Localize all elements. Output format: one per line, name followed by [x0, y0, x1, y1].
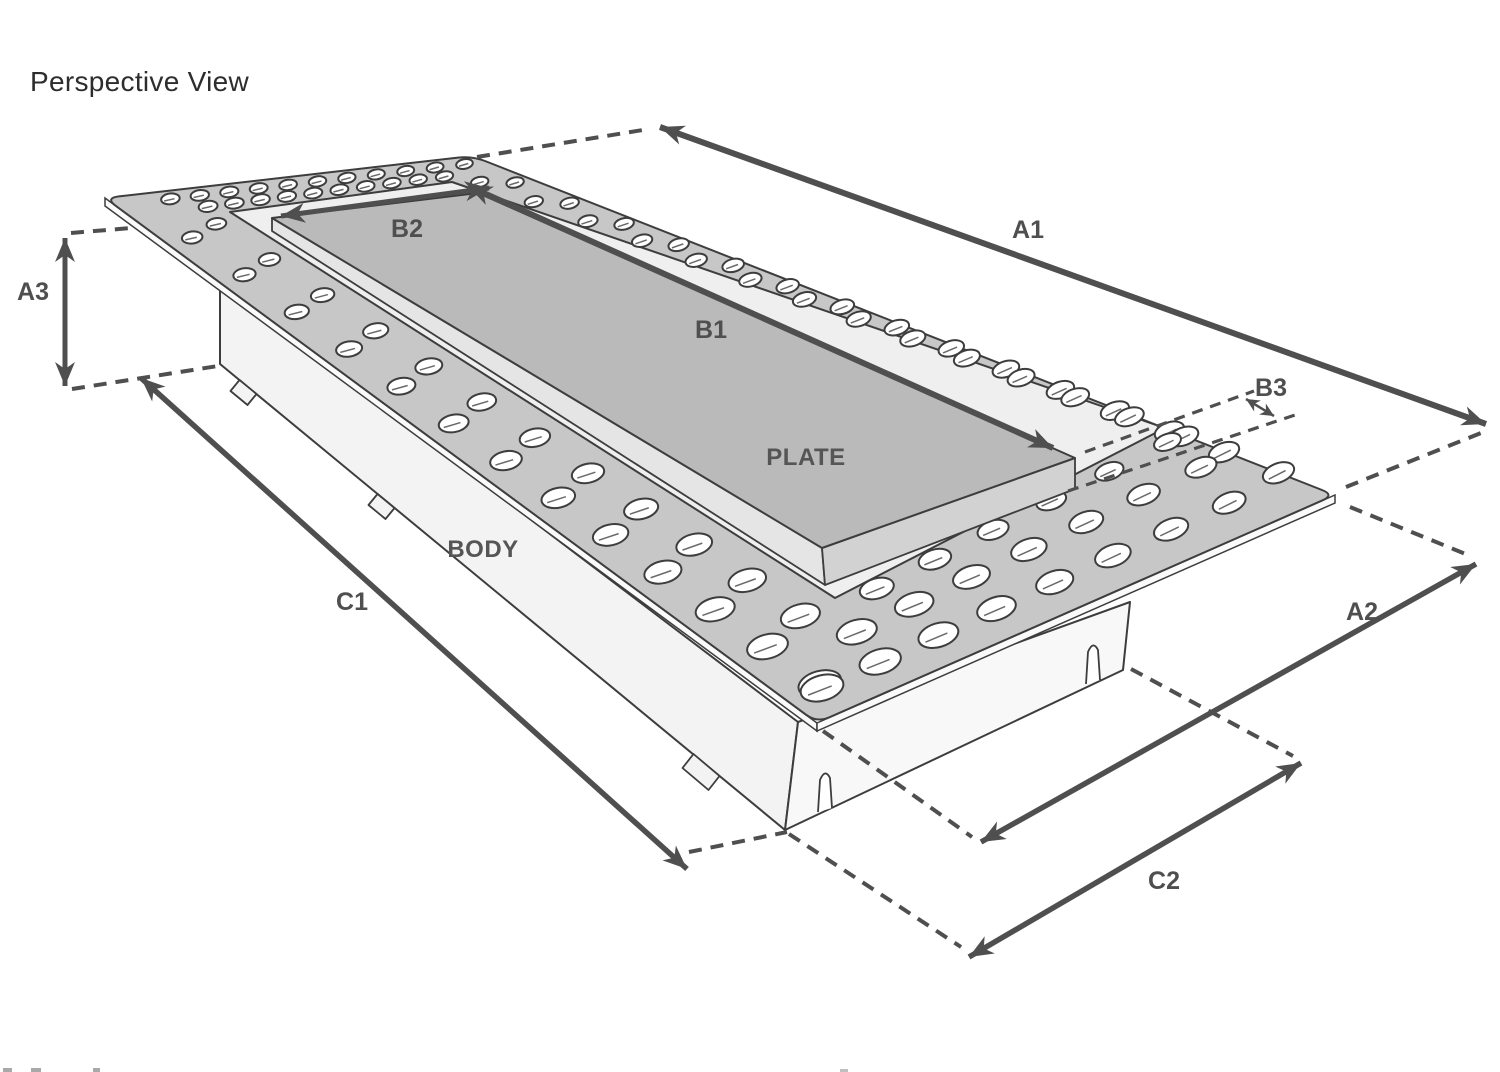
extension-line	[72, 366, 218, 389]
dimension-label-b3: B3	[1255, 374, 1287, 402]
dimension-label-c1: C1	[336, 588, 368, 616]
body-slot	[818, 773, 832, 812]
plate-label: PLATE	[766, 444, 845, 471]
dimension-arrow-c2	[969, 763, 1301, 957]
dimension-label-b1: B1	[695, 316, 727, 344]
dimension-b3: B3	[1246, 374, 1287, 416]
extension-line	[1350, 507, 1468, 555]
perspective-diagram: A1 B1 B2 A3 C1 A2 C2 B3	[0, 0, 1500, 1072]
dimension-label-a3: A3	[17, 278, 49, 306]
dimension-label-a1: A1	[1012, 216, 1044, 244]
extension-line	[1346, 433, 1481, 487]
dimension-label-c2: C2	[1148, 867, 1180, 895]
extension-line	[689, 832, 787, 852]
diagram-page: Perspective View	[0, 0, 1500, 1072]
extension-line	[477, 129, 649, 157]
dimension-a3: A3	[17, 238, 65, 386]
extension-line	[789, 834, 961, 947]
extension-line	[71, 228, 131, 233]
dimension-label-b2: B2	[391, 215, 423, 243]
dimension-label-a2: A2	[1346, 598, 1378, 626]
body-label: BODY	[447, 536, 518, 563]
cropped-text-fragment	[3, 1068, 848, 1072]
dimension-c2: C2	[969, 763, 1301, 957]
body-slot	[1086, 645, 1100, 684]
